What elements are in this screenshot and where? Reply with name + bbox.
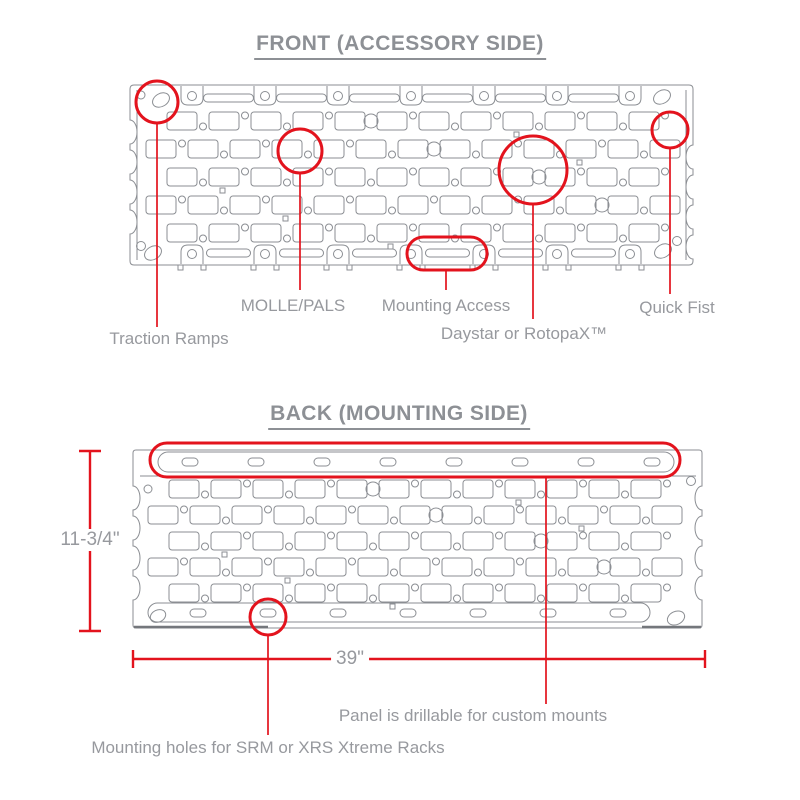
label-quick-fist: Quick Fist — [639, 298, 715, 318]
back-title: BACK (MOUNTING SIDE) — [268, 402, 530, 430]
label-mounting-access: Mounting Access — [382, 296, 511, 316]
dimension-height-label: 11-3/4" — [55, 529, 124, 551]
label-drillable: Panel is drillable for custom mounts — [339, 706, 607, 726]
callout-circle-molle-pals — [278, 129, 322, 173]
molle-panel-diagram — [0, 0, 800, 800]
front-title: FRONT (ACCESSORY SIDE) — [254, 32, 546, 60]
diagram-canvas: FRONT (ACCESSORY SIDE) BACK (MOUNTING SI… — [0, 0, 800, 800]
callout-circle-traction-ramps — [136, 81, 178, 123]
label-traction-ramps: Traction Ramps — [109, 329, 228, 349]
label-mounting-holes: Mounting holes for SRM or XRS Xtreme Rac… — [91, 738, 444, 758]
label-molle-pals: MOLLE/PALS — [241, 296, 346, 316]
label-daystar-rotopax: Daystar or RotopaX™ — [441, 324, 607, 344]
dimension-width-label: 39" — [331, 648, 369, 670]
